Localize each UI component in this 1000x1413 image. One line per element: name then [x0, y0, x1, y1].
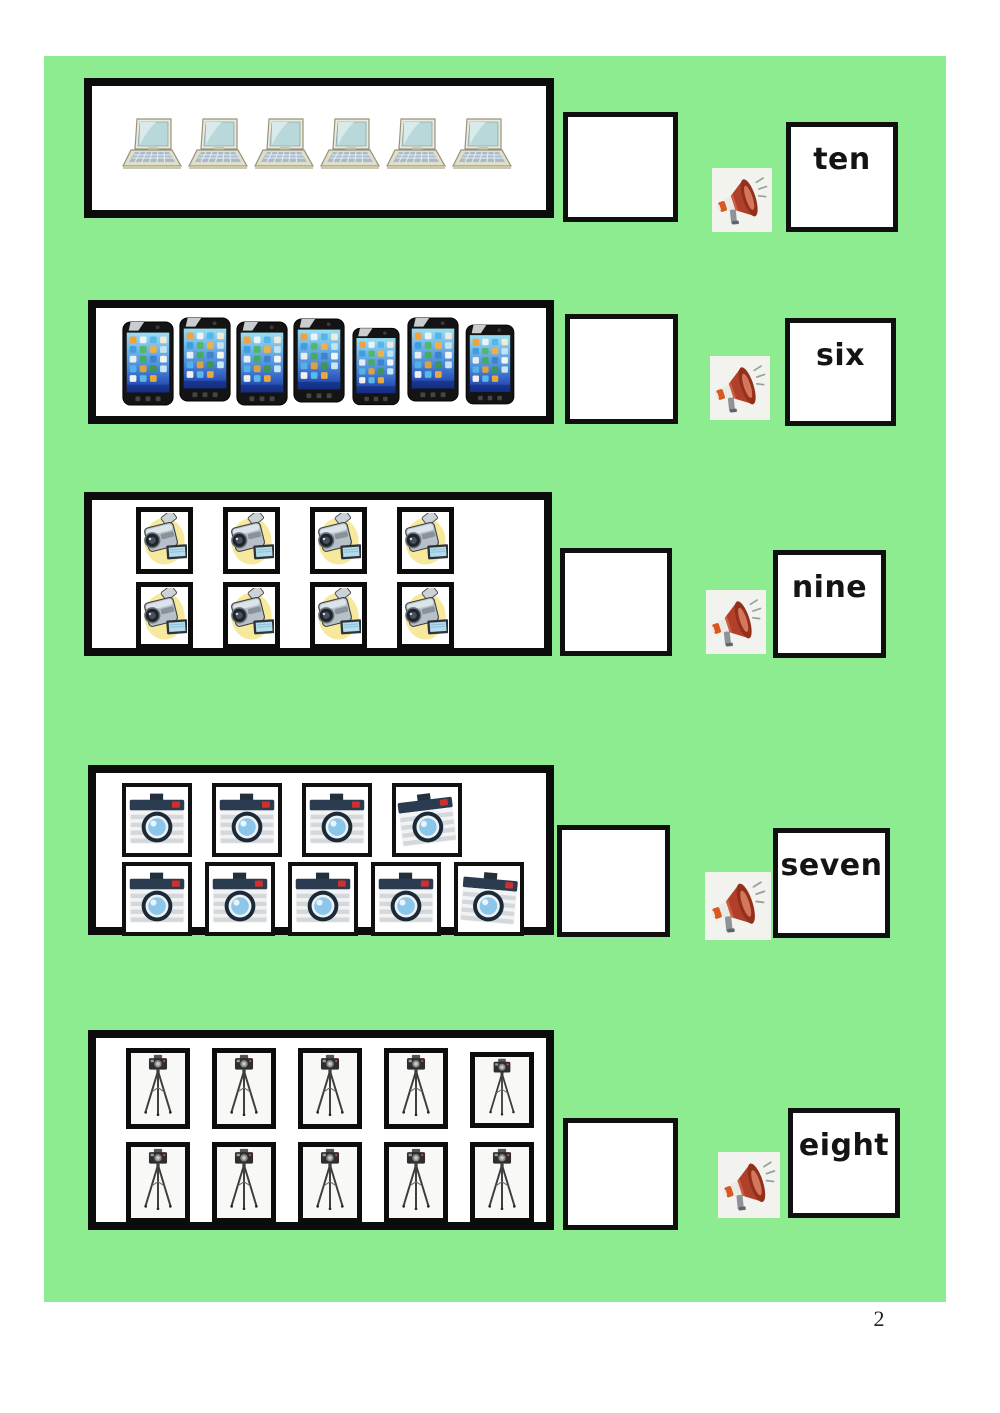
- camera-image: [122, 862, 192, 936]
- stimulus-box: [84, 78, 554, 218]
- word-label: seven: [781, 848, 883, 883]
- worksheet-page: ten six nine seven: [0, 0, 1000, 1413]
- laptop-image: [186, 116, 252, 174]
- stimulus-box: [88, 300, 554, 424]
- answer-box[interactable]: [563, 1118, 678, 1230]
- laptop-image: [384, 116, 450, 174]
- page-number: 2: [864, 1306, 894, 1332]
- answer-box[interactable]: [557, 825, 670, 937]
- smartphone-image: [177, 317, 233, 402]
- stimulus-box: [88, 1030, 554, 1230]
- smartphone-image: [463, 324, 516, 405]
- megaphone-icon: [721, 1155, 777, 1215]
- camera-image: [454, 862, 524, 936]
- laptop-image: [450, 116, 516, 174]
- tripod-camera-image: [470, 1142, 534, 1223]
- megaphone-icon: [713, 359, 767, 417]
- tripod-camera-image: [126, 1048, 190, 1129]
- camera-image: [371, 862, 441, 936]
- audio-button[interactable]: [710, 356, 770, 420]
- camera-image: [392, 783, 462, 857]
- answer-box[interactable]: [565, 314, 678, 424]
- answer-box[interactable]: [563, 112, 678, 222]
- audio-button[interactable]: [712, 168, 772, 232]
- camcorder-image: [136, 582, 193, 649]
- camcorder-image: [310, 582, 367, 649]
- smartphone-image: [120, 321, 176, 406]
- audio-button[interactable]: [706, 590, 766, 654]
- tripod-camera-image: [384, 1048, 448, 1129]
- stimulus-box: [84, 492, 552, 656]
- word-label: ten: [813, 142, 871, 177]
- smartphone-image: [350, 327, 402, 405]
- laptop-image: [120, 116, 186, 174]
- camcorder-image: [310, 507, 367, 574]
- tripod-camera-image: [298, 1142, 362, 1223]
- smartphone-image: [234, 321, 290, 406]
- word-card[interactable]: nine: [773, 550, 886, 658]
- camcorder-image: [397, 507, 454, 574]
- camcorder-image: [136, 507, 193, 574]
- audio-button[interactable]: [718, 1152, 780, 1218]
- camera-image: [212, 783, 282, 857]
- tripod-camera-image: [384, 1142, 448, 1223]
- word-card[interactable]: eight: [788, 1108, 900, 1218]
- tripod-camera-image: [126, 1142, 190, 1223]
- word-label: six: [816, 338, 865, 373]
- stimulus-box: [88, 765, 554, 935]
- camera-image: [122, 783, 192, 857]
- tripod-camera-image: [212, 1048, 276, 1129]
- word-card[interactable]: ten: [786, 122, 898, 232]
- word-label: nine: [792, 570, 867, 605]
- word-label: eight: [799, 1128, 889, 1163]
- tripod-camera-image: [212, 1142, 276, 1223]
- megaphone-icon: [715, 171, 769, 229]
- camcorder-image: [397, 582, 454, 649]
- camera-image: [205, 862, 275, 936]
- word-card[interactable]: six: [785, 318, 896, 426]
- camcorder-image: [223, 582, 280, 649]
- tripod-camera-image: [298, 1048, 362, 1129]
- camcorder-image: [223, 507, 280, 574]
- word-card[interactable]: seven: [773, 828, 890, 938]
- megaphone-icon: [709, 593, 763, 651]
- audio-button[interactable]: [705, 872, 771, 940]
- laptop-image: [252, 116, 318, 174]
- smartphone-image: [291, 318, 347, 403]
- tripod-camera-image: [470, 1052, 534, 1128]
- answer-box[interactable]: [560, 548, 672, 656]
- laptop-image: [318, 116, 384, 174]
- megaphone-icon: [708, 875, 768, 937]
- smartphone-image: [405, 317, 461, 402]
- camera-image: [288, 862, 358, 936]
- camera-image: [302, 783, 372, 857]
